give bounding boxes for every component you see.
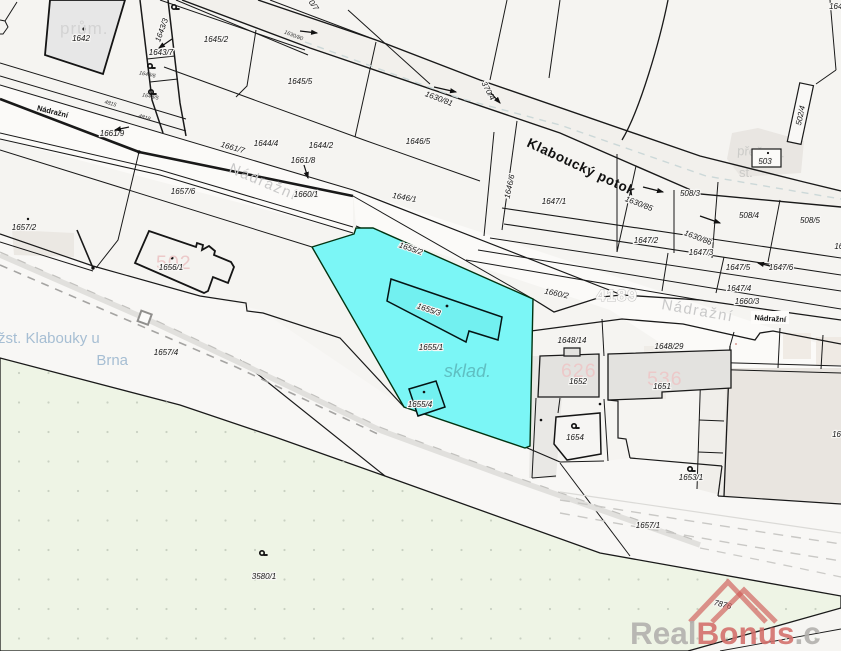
svg-text:1660/3: 1660/3 bbox=[735, 297, 760, 306]
svg-text:1657/6: 1657/6 bbox=[171, 187, 196, 196]
svg-text:1657/2: 1657/2 bbox=[12, 223, 37, 232]
svg-text:508/4: 508/4 bbox=[739, 211, 760, 220]
svg-text:1647/2: 1647/2 bbox=[634, 236, 659, 245]
svg-text:3580/1: 3580/1 bbox=[252, 572, 276, 581]
svg-text:4189: 4189 bbox=[596, 286, 638, 305]
svg-text:žst. Klabouky u: žst. Klabouky u bbox=[0, 330, 100, 347]
svg-text:1643/7: 1643/7 bbox=[149, 48, 174, 57]
svg-text:1652: 1652 bbox=[569, 377, 587, 386]
svg-text:1647/1: 1647/1 bbox=[542, 197, 566, 206]
svg-text:508/5: 508/5 bbox=[800, 216, 821, 225]
svg-text:503: 503 bbox=[758, 157, 772, 166]
svg-text:1661/8: 1661/8 bbox=[291, 156, 316, 165]
svg-text:1648/29: 1648/29 bbox=[655, 342, 684, 351]
svg-text:1645/2: 1645/2 bbox=[204, 35, 229, 44]
svg-text:1646/5: 1646/5 bbox=[406, 137, 431, 146]
svg-text:1655/4: 1655/4 bbox=[408, 400, 433, 409]
svg-text:1654: 1654 bbox=[566, 433, 584, 442]
svg-text:1645/5: 1645/5 bbox=[288, 77, 313, 86]
svg-text:1644/2: 1644/2 bbox=[309, 141, 334, 150]
svg-text:1647/4: 1647/4 bbox=[727, 284, 752, 293]
svg-text:1647/5: 1647/5 bbox=[726, 263, 751, 272]
svg-text:RealBonus.c: RealBonus.c bbox=[630, 615, 821, 651]
svg-text:1656/1: 1656/1 bbox=[159, 263, 183, 272]
svg-text:1643: 1643 bbox=[829, 2, 841, 11]
svg-text:1655/1: 1655/1 bbox=[419, 343, 443, 352]
svg-text:1655: 1655 bbox=[832, 430, 841, 439]
svg-text:1647/6: 1647/6 bbox=[769, 263, 794, 272]
svg-text:164: 164 bbox=[834, 242, 841, 251]
svg-text:1644/4: 1644/4 bbox=[254, 139, 279, 148]
svg-text:1642: 1642 bbox=[72, 34, 90, 43]
svg-text:st.: st. bbox=[739, 165, 753, 180]
svg-text:1657/1: 1657/1 bbox=[636, 521, 660, 530]
svg-text:508/3: 508/3 bbox=[680, 189, 701, 198]
svg-text:1657/4: 1657/4 bbox=[154, 348, 179, 357]
svg-text:sklad.: sklad. bbox=[444, 361, 491, 381]
svg-text:1660/1: 1660/1 bbox=[294, 190, 318, 199]
svg-text:1648/14: 1648/14 bbox=[558, 336, 587, 345]
svg-text:1651: 1651 bbox=[653, 382, 671, 391]
svg-text:1661/9: 1661/9 bbox=[100, 129, 125, 138]
svg-text:Brna: Brna bbox=[96, 352, 128, 369]
svg-text:1647/3: 1647/3 bbox=[689, 248, 714, 257]
svg-text:1653/1: 1653/1 bbox=[679, 473, 703, 482]
